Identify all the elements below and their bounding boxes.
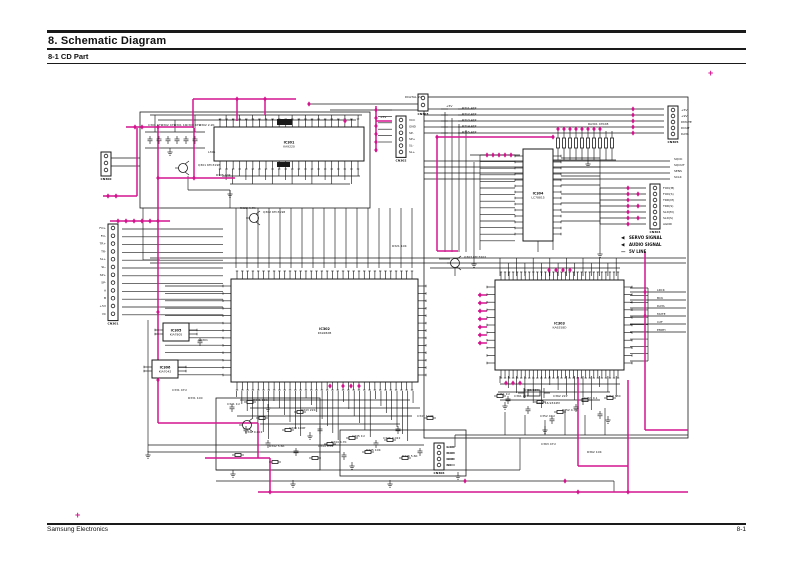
svg-text:SENS: SENS: [674, 169, 682, 173]
svg-text:VCC: VCC: [409, 118, 415, 122]
svg-text:C346 0.022: C346 0.022: [383, 436, 400, 440]
page-title: 8. Schematic Diagram: [47, 33, 746, 48]
svg-text:KA9220: KA9220: [283, 145, 295, 149]
svg-text:GND: GND: [409, 124, 417, 128]
svg-text:C345 1U: C345 1U: [352, 434, 365, 438]
svg-text:DIGITAL 9V: DIGITAL 9V: [405, 95, 423, 99]
svg-text:+5V: +5V: [380, 115, 387, 119]
ic-ic302: IC302KS9282B: [223, 271, 426, 390]
svg-text:SP+: SP+: [409, 137, 416, 141]
svg-text:FO+: FO+: [99, 226, 106, 230]
svg-text:NC: NC: [447, 463, 451, 467]
svg-text:TRD(M): TRD(M): [662, 198, 674, 202]
svg-text:R322 4.7K: R322 4.7K: [240, 206, 257, 210]
svg-text:TRD(S): TRD(S): [662, 204, 673, 208]
legend-item-0: ◀SERVO SIGNAL: [621, 235, 663, 241]
svg-text:KIA7042: KIA7042: [159, 370, 172, 374]
legend-item-2: —5V LINE: [621, 249, 647, 255]
svg-text:SCLK: SCLK: [674, 175, 683, 179]
svg-text:BCK: BCK: [657, 296, 664, 300]
svg-text:SQOUT: SQOUT: [674, 163, 685, 167]
svg-text:C351 1U: C351 1U: [497, 392, 510, 396]
svg-text:+5V: +5V: [446, 104, 453, 108]
svg-text:C353 0.1: C353 0.1: [584, 396, 598, 400]
connector-cn302: VCCGNDSP-SP+SL-SL+CN302: [396, 116, 417, 162]
svg-text:R-CH: R-CH: [447, 451, 454, 455]
svg-text:A: A: [104, 288, 107, 292]
svg-text:+5V: +5V: [681, 108, 688, 112]
svg-text:SL+: SL+: [409, 150, 416, 154]
svg-text:SL-: SL-: [101, 265, 106, 269]
svg-text:SLD(S): SLD(S): [663, 216, 673, 220]
svg-text:CN306: CN306: [434, 471, 445, 475]
ic-ic305: IC305KIA7805: [155, 323, 197, 341]
svg-text:CN302: CN302: [396, 158, 407, 162]
schematic-canvas: IC301KA9220IC302KS9282BIC303KA9258DIC304…: [0, 0, 793, 561]
svg-text:+9V: +9V: [681, 114, 688, 118]
svg-text:DATA: DATA: [681, 132, 690, 136]
page-header: 8. Schematic Diagram 8-1 CD Part: [47, 30, 746, 64]
svg-text:SLD(M): SLD(M): [663, 210, 674, 214]
svg-text:R345 10K: R345 10K: [366, 448, 382, 452]
svg-text:R312 47K: R312 47K: [462, 112, 478, 116]
svg-text:CN304: CN304: [650, 230, 661, 234]
svg-text:EMPH: EMPH: [657, 328, 666, 332]
svg-text:RA301 47KX8: RA301 47KX8: [588, 122, 609, 126]
svg-text:R346 5.6K: R346 5.6K: [402, 454, 419, 458]
svg-text:C352 47U: C352 47U: [540, 414, 555, 418]
svg-text:CN305: CN305: [668, 140, 679, 144]
svg-text:SP+: SP+: [100, 273, 107, 277]
svg-text:R305 10K: R305 10K: [216, 173, 232, 177]
svg-text:◀: ◀: [621, 236, 625, 241]
svg-text:AGND: AGND: [663, 222, 673, 226]
ic-ic301: IC301KA9220: [214, 119, 364, 169]
svg-text:LC78815: LC78815: [531, 196, 544, 200]
svg-text:◀: ◀: [621, 243, 625, 248]
svg-text:CN300: CN300: [101, 177, 112, 181]
svg-text:DMUTE: DMUTE: [681, 120, 692, 124]
svg-text:SP-: SP-: [409, 131, 414, 135]
svg-text:R302 2.2K: R302 2.2K: [199, 123, 216, 127]
svg-text:R352 4.7K: R352 4.7K: [562, 408, 579, 412]
svg-text:VC: VC: [102, 312, 106, 316]
svg-text:C344 0.01: C344 0.01: [318, 444, 334, 448]
svg-text:KS9282B: KS9282B: [318, 331, 332, 335]
svg-text:R314 47K: R314 47K: [462, 124, 478, 128]
svg-text:R315 47K: R315 47K: [462, 130, 478, 134]
svg-text:VR301: VR301: [198, 338, 208, 342]
svg-text:C2F: C2F: [657, 320, 663, 324]
svg-text:R353 330: R353 330: [606, 394, 621, 398]
svg-text:SP-: SP-: [101, 281, 106, 285]
connector-cn300: CN300: [101, 152, 112, 181]
svg-text:SL+: SL+: [100, 257, 107, 261]
svg-text:R311 47K: R311 47K: [462, 106, 478, 110]
registration-mark-bottom: +: [75, 511, 80, 519]
legend-item-1: ◀AUDIO SIGNAL: [621, 242, 662, 248]
svg-text:C347 100P: C347 100P: [417, 414, 434, 418]
svg-text:Q301 KTC3198: Q301 KTC3198: [198, 163, 220, 167]
svg-text:DOUT: DOUT: [681, 126, 690, 130]
svg-text:SERVO SIGNAL: SERVO SIGNAL: [629, 235, 663, 240]
svg-text:TR+: TR+: [99, 242, 107, 246]
svg-text:C362 22P: C362 22P: [553, 394, 568, 398]
footer-page-number: 8-1: [737, 526, 746, 533]
svg-text:C363 47U: C363 47U: [541, 442, 556, 446]
svg-text:B: B: [104, 296, 106, 300]
ic-ic304: IC304LC78815: [515, 149, 561, 241]
section-subtitle: 8-1 CD Part: [47, 50, 746, 63]
svg-text:R342 5.6K: R342 5.6K: [269, 444, 286, 448]
svg-text:KIA7805: KIA7805: [170, 333, 183, 337]
svg-text:CN303: CN303: [418, 112, 429, 116]
svg-text:C361 22P: C361 22P: [514, 394, 529, 398]
svg-text:MUTE: MUTE: [657, 312, 666, 316]
svg-text:C341 1U: C341 1U: [227, 402, 240, 406]
svg-text:C342 0.022: C342 0.022: [245, 430, 262, 434]
svg-text:R341 10K: R341 10K: [253, 398, 269, 402]
footer-company: Samsung Electronics: [47, 526, 108, 533]
registration-mark-top: +: [708, 69, 713, 77]
svg-text:X301 16.9344M: X301 16.9344M: [536, 401, 560, 405]
ic-ic303: IC303KA9258D: [487, 272, 632, 378]
svg-text:+5V: +5V: [100, 304, 107, 308]
svg-text:KA9258D: KA9258D: [553, 326, 568, 330]
svg-text:C343 100P: C343 100P: [289, 426, 306, 430]
svg-text:R331 100: R331 100: [188, 396, 203, 400]
svg-text:FOD(S): FOD(S): [663, 192, 674, 196]
svg-text:R344 4.7K: R344 4.7K: [331, 440, 348, 444]
svg-text:L301: L301: [208, 150, 215, 154]
svg-text:GND: GND: [447, 457, 455, 461]
svg-text:CN301: CN301: [108, 322, 119, 326]
svg-text:DATA: DATA: [657, 304, 666, 308]
svg-text:5V LINE: 5V LINE: [629, 249, 647, 254]
page-footer: Samsung Electronics 8-1: [47, 523, 746, 533]
svg-text:SL-: SL-: [409, 144, 414, 148]
svg-text:R351 10K: R351 10K: [524, 388, 540, 392]
svg-text:R362 10K: R362 10K: [587, 450, 603, 454]
svg-text:TR-: TR-: [100, 249, 106, 253]
svg-text:AUDIO SIGNAL: AUDIO SIGNAL: [629, 242, 662, 247]
connector-cn301: FO+FO-TR+TR-SL+SL-SP+SP-AB+5VVCCN301: [99, 224, 119, 326]
connector-cn304: FOD(M)FOD(S)TRD(M)TRD(S)SLD(M)SLD(S)AGND…: [650, 184, 675, 234]
svg-text:SQCK: SQCK: [674, 157, 683, 161]
svg-text:FOD(M): FOD(M): [663, 186, 674, 190]
svg-text:Q302 KTC3198: Q302 KTC3198: [263, 210, 285, 214]
svg-text:R343 22K: R343 22K: [301, 408, 317, 412]
svg-text:C331 47U: C331 47U: [172, 388, 187, 392]
svg-text:—: —: [621, 250, 626, 255]
svg-text:LRCK: LRCK: [657, 288, 666, 292]
svg-text:R313 47K: R313 47K: [462, 118, 478, 122]
header-rule-bottom: [47, 63, 746, 65]
svg-text:FO-: FO-: [101, 234, 106, 238]
svg-text:Q303 KTC3202: Q303 KTC3202: [464, 255, 486, 259]
svg-text:L-CH: L-CH: [447, 445, 454, 449]
manual-page: IC301KA9220IC302KS9282BIC303KA9258DIC304…: [0, 0, 793, 561]
svg-text:R321 10K: R321 10K: [392, 244, 408, 248]
ic-ic306: IC306KIA7042: [144, 360, 186, 378]
legend: ◀SERVO SIGNAL◀AUDIO SIGNAL—5V LINE: [621, 235, 663, 255]
